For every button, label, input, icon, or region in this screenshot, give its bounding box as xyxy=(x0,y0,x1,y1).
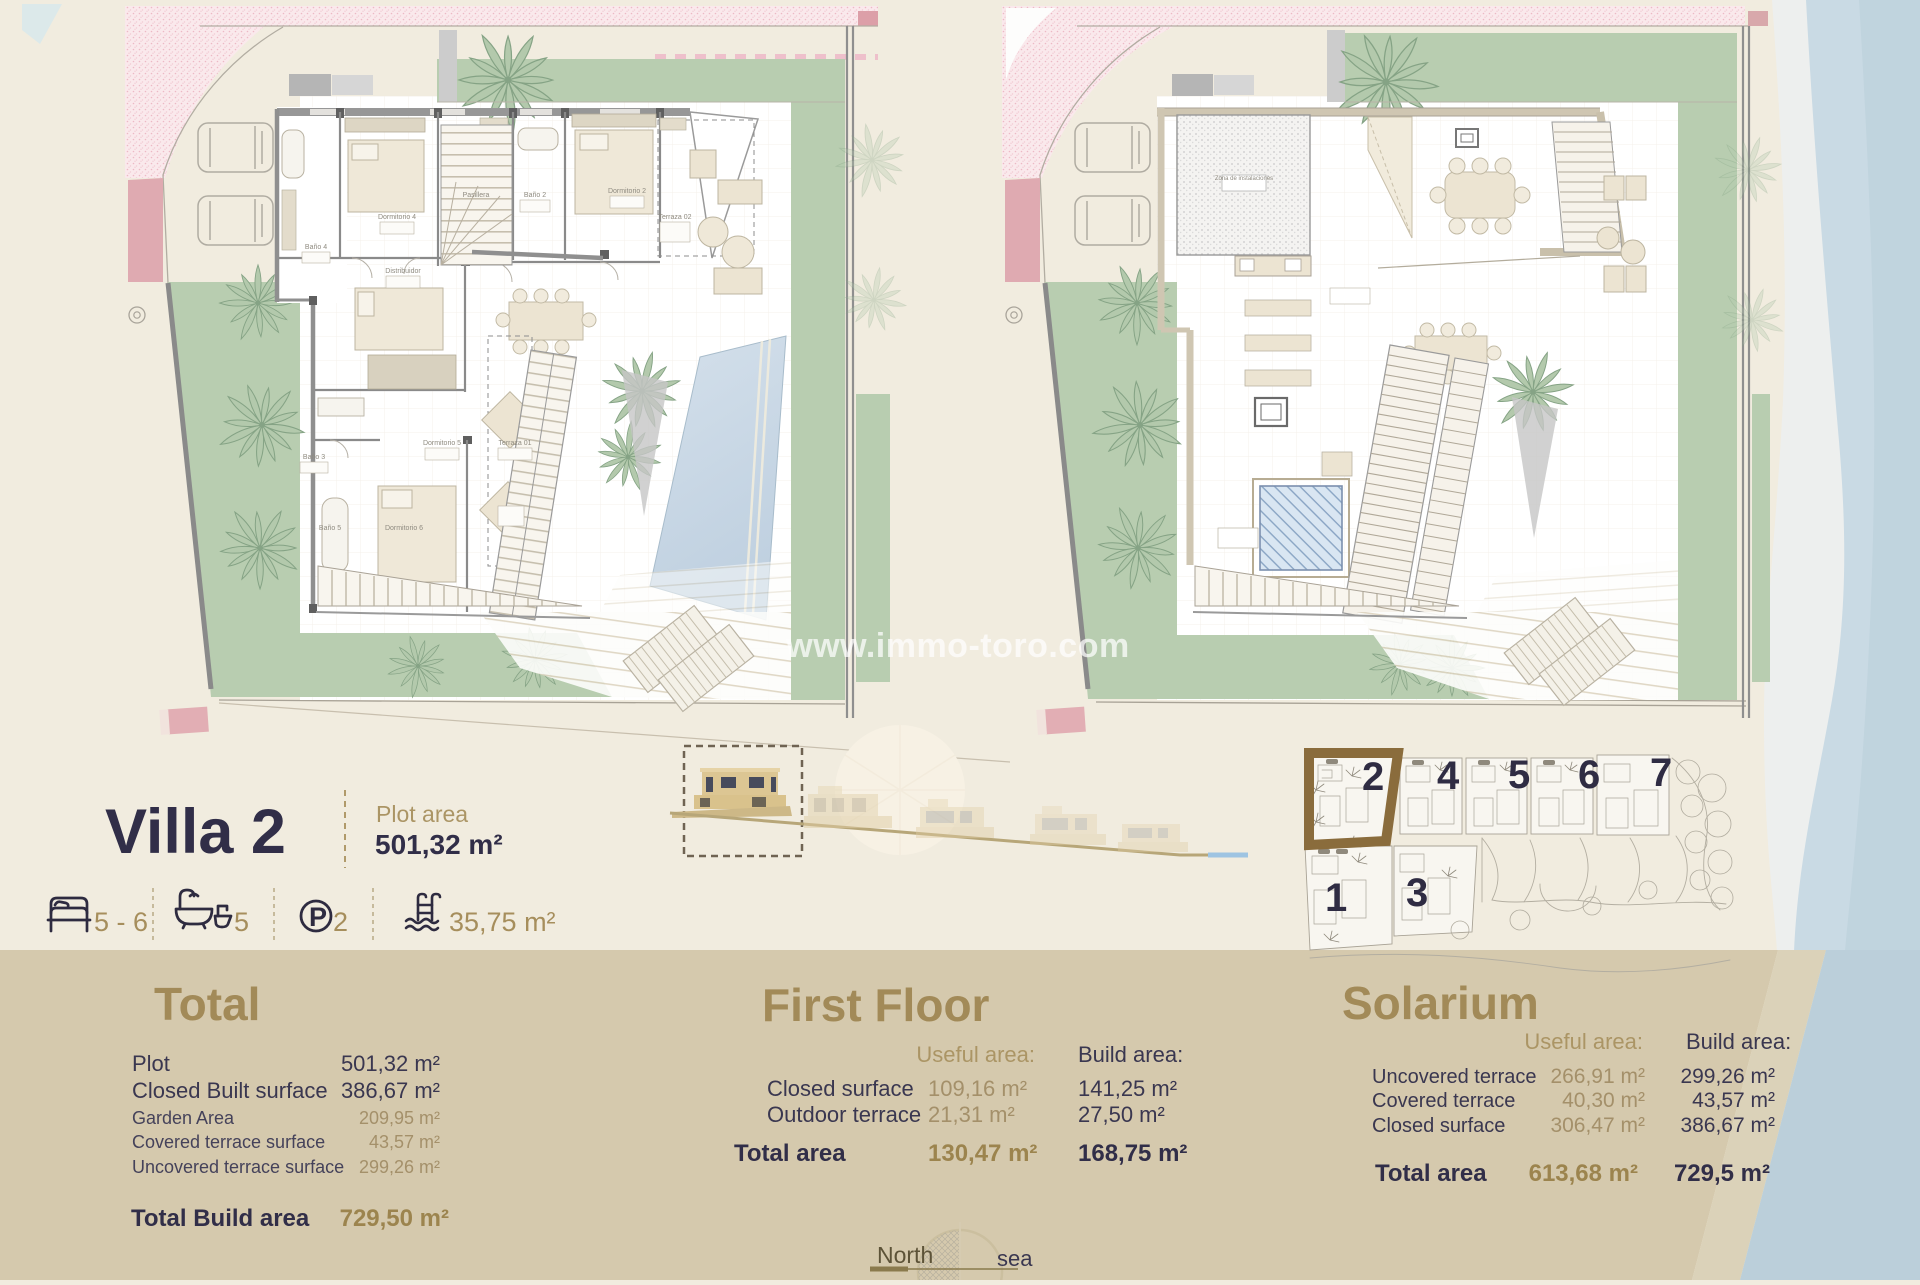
svg-text:Closed surface: Closed surface xyxy=(1372,1115,1505,1137)
svg-text:www.immo-toro.com: www.immo-toro.com xyxy=(785,627,1129,665)
svg-text:Build area:: Build area: xyxy=(1078,1042,1183,1067)
svg-text:Total area: Total area xyxy=(1375,1160,1487,1187)
svg-text:729,50 m²: 729,50 m² xyxy=(340,1205,449,1232)
svg-text:5: 5 xyxy=(1508,753,1530,797)
svg-text:Terraza 01: Terraza 01 xyxy=(498,440,531,447)
svg-text:2: 2 xyxy=(333,907,348,937)
svg-text:Outdoor terrace: Outdoor terrace xyxy=(767,1102,921,1127)
svg-text:Useful area:: Useful area: xyxy=(916,1042,1035,1067)
svg-text:Covered terrace: Covered terrace xyxy=(1372,1090,1515,1112)
svg-text:Total Build area: Total Build area xyxy=(131,1205,310,1232)
svg-text:Terraza 02: Terraza 02 xyxy=(658,214,691,221)
svg-text:3: 3 xyxy=(1406,871,1428,915)
svg-text:613,68 m²: 613,68 m² xyxy=(1529,1160,1638,1187)
svg-text:209,95 m²: 209,95 m² xyxy=(359,1108,440,1128)
svg-text:North: North xyxy=(877,1242,933,1268)
svg-text:Dormitorio 2: Dormitorio 2 xyxy=(608,188,646,195)
svg-text:130,47 m²: 130,47 m² xyxy=(928,1140,1037,1167)
svg-text:Total area: Total area xyxy=(734,1140,846,1167)
svg-text:21,31 m²: 21,31 m² xyxy=(928,1102,1015,1127)
svg-text:1: 1 xyxy=(1325,876,1347,920)
svg-text:168,75 m²: 168,75 m² xyxy=(1078,1140,1187,1167)
svg-text:Dormitorio 4: Dormitorio 4 xyxy=(378,214,416,221)
svg-text:109,16 m²: 109,16 m² xyxy=(928,1076,1027,1101)
svg-text:299,26 m²: 299,26 m² xyxy=(1680,1065,1775,1088)
svg-text:501,32 m²: 501,32 m² xyxy=(341,1051,440,1076)
svg-text:Baño 3: Baño 3 xyxy=(303,454,325,461)
svg-text:Plot area: Plot area xyxy=(376,801,468,827)
svg-text:40,30 m²: 40,30 m² xyxy=(1562,1089,1645,1112)
svg-text:6: 6 xyxy=(1578,753,1600,797)
svg-text:5: 5 xyxy=(234,907,249,937)
svg-text:266,91 m²: 266,91 m² xyxy=(1550,1065,1645,1088)
svg-text:Pasillera: Pasillera xyxy=(463,192,490,199)
svg-text:Baño 5: Baño 5 xyxy=(319,525,341,532)
svg-text:Total: Total xyxy=(154,978,260,1030)
svg-text:Baño 4: Baño 4 xyxy=(305,244,327,251)
svg-text:Uncovered terrace: Uncovered terrace xyxy=(1372,1066,1537,1088)
svg-text:P: P xyxy=(309,902,327,932)
svg-text:Villa 2: Villa 2 xyxy=(105,797,286,867)
svg-text:729,5 m²: 729,5 m² xyxy=(1674,1160,1770,1187)
svg-text:Useful area:: Useful area: xyxy=(1524,1029,1643,1054)
svg-text:386,67 m²: 386,67 m² xyxy=(341,1078,440,1103)
svg-text:386,67 m²: 386,67 m² xyxy=(1680,1114,1775,1137)
svg-text:Covered terrace surface: Covered terrace surface xyxy=(132,1132,325,1152)
svg-text:5 - 6: 5 - 6 xyxy=(94,907,148,937)
svg-text:2: 2 xyxy=(1362,755,1384,799)
svg-text:Distribuidor: Distribuidor xyxy=(385,268,421,275)
svg-text:501,32 m²: 501,32 m² xyxy=(375,829,503,860)
svg-text:7: 7 xyxy=(1650,751,1672,795)
svg-text:4: 4 xyxy=(1437,754,1460,798)
svg-text:Baño 2: Baño 2 xyxy=(524,192,546,199)
svg-text:299,26 m²: 299,26 m² xyxy=(359,1157,440,1177)
svg-text:First Floor: First Floor xyxy=(762,979,990,1031)
svg-text:Plot: Plot xyxy=(132,1051,170,1076)
svg-text:Closed surface: Closed surface xyxy=(767,1076,914,1101)
svg-text:Zona de instalaciones: Zona de instalaciones xyxy=(1215,176,1273,182)
svg-text:Closed Built surface: Closed Built surface xyxy=(132,1078,328,1103)
svg-text:306,47 m²: 306,47 m² xyxy=(1550,1114,1645,1137)
svg-text:27,50 m²: 27,50 m² xyxy=(1078,1102,1165,1127)
svg-text:Uncovered terrace surface: Uncovered terrace surface xyxy=(132,1157,344,1177)
svg-text:43,57 m²: 43,57 m² xyxy=(369,1132,440,1152)
svg-text:Dormitorio 5: Dormitorio 5 xyxy=(423,440,461,447)
svg-text:141,25 m²: 141,25 m² xyxy=(1078,1076,1177,1101)
svg-text:sea: sea xyxy=(997,1246,1033,1271)
svg-text:Solarium: Solarium xyxy=(1342,977,1539,1029)
svg-text:43,57 m²: 43,57 m² xyxy=(1692,1089,1775,1112)
svg-text:Build area:: Build area: xyxy=(1686,1029,1791,1054)
svg-text:Garden Area: Garden Area xyxy=(132,1108,235,1128)
svg-text:Dormitorio 6: Dormitorio 6 xyxy=(385,525,423,532)
svg-text:35,75 m²: 35,75 m² xyxy=(449,907,556,937)
